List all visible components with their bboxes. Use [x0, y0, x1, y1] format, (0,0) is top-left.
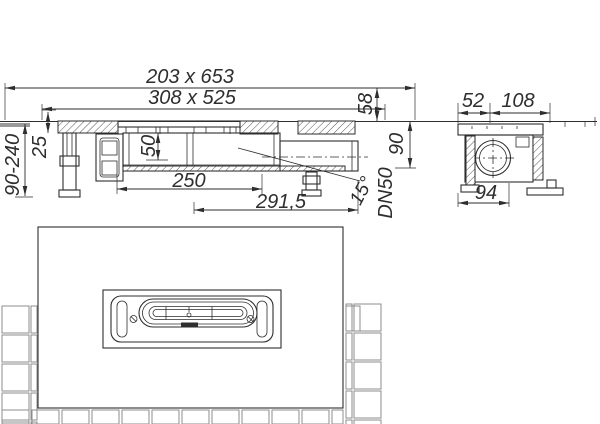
dim-cutout: 308 x 525 [148, 88, 236, 108]
dim-outlet-size: DN50 [376, 167, 396, 218]
dim-outlet-offset: 291,5 [256, 192, 306, 212]
dim-edge-height: 58 [356, 93, 376, 115]
plan-view-floor [38, 227, 343, 408]
dim-install-depth: 90 [387, 133, 407, 155]
screw-head-left [130, 316, 137, 323]
plan-view-tiles [2, 304, 381, 424]
section-top-assembly [58, 121, 355, 134]
plan-view-grate [103, 290, 281, 348]
dim-side-offset-a: 52 [462, 91, 484, 111]
dim-water-seal: 50 [139, 135, 159, 157]
dim-side-foot-width: 94 [475, 183, 497, 203]
technical-drawing-shower-channel: 203 x 653 308 x 525 58 90 90-240 25 50 2… [0, 0, 600, 424]
dim-flange-offset: 25 [30, 136, 50, 158]
section-end-cap [96, 134, 123, 181]
side-view [458, 124, 563, 195]
dim-overall-grate: 203 x 653 [146, 67, 234, 87]
brand-mark [181, 323, 198, 327]
section-height-adjustable-foot [59, 133, 80, 197]
dim-body-length: 250 [172, 171, 205, 191]
dim-side-offset-b: 108 [501, 91, 534, 111]
dim-adjust-height: 90-240 [3, 134, 23, 196]
